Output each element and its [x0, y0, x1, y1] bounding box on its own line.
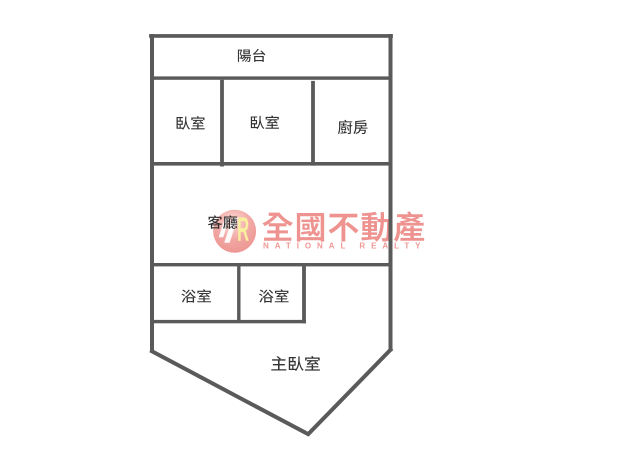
svg-text:NATIONAL REALTY: NATIONAL REALTY — [263, 241, 426, 250]
